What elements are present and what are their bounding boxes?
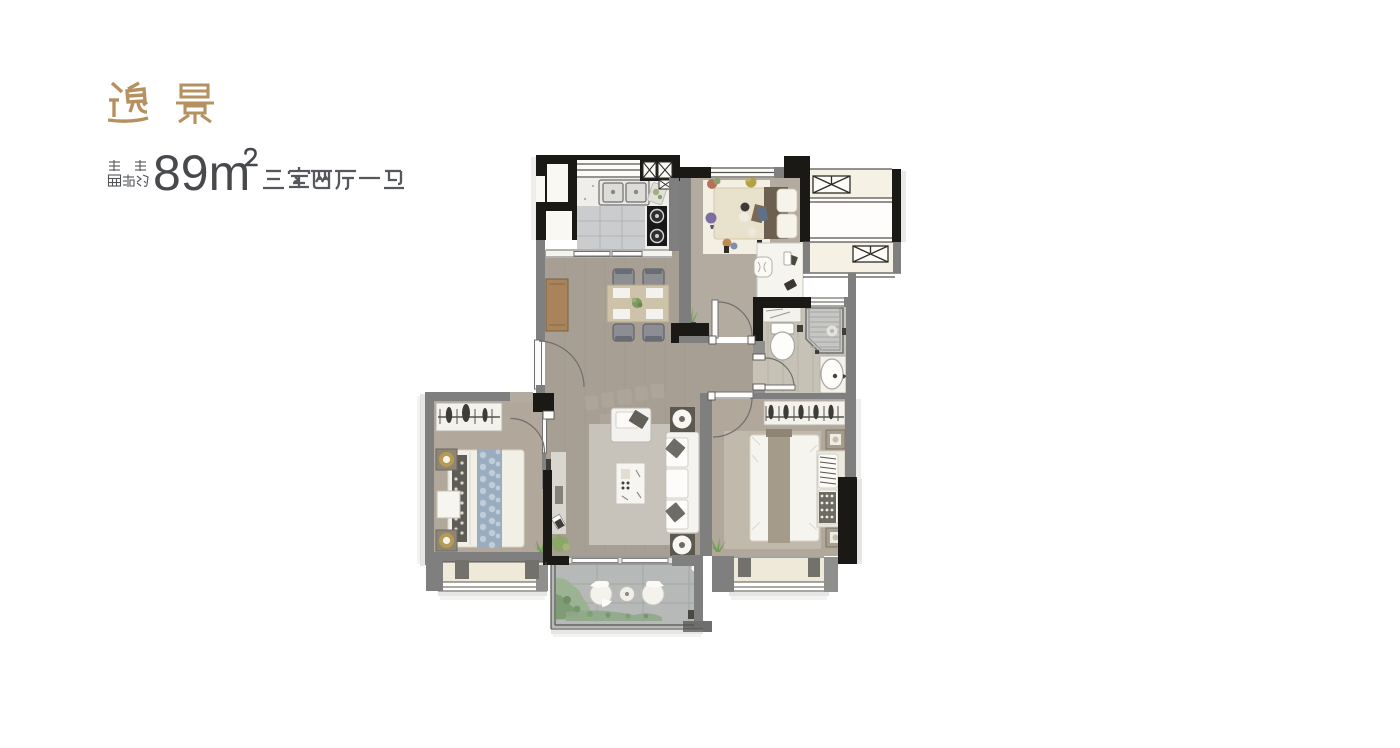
svg-text:89m: 89m [153,145,250,201]
